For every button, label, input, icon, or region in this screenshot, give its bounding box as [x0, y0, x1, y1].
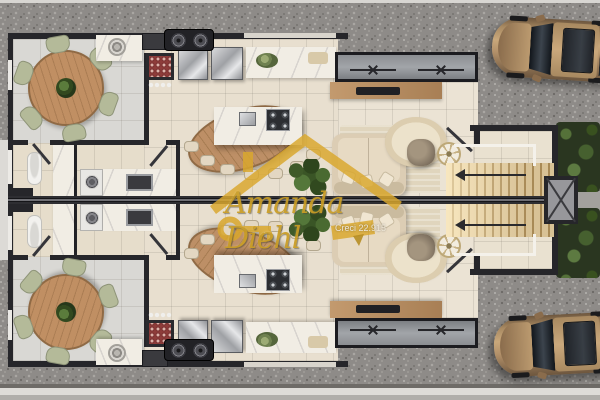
stair-railing [454, 144, 536, 147]
bar-stool [268, 168, 283, 179]
sidewalk-top [0, 0, 600, 3]
bar-stool [268, 221, 283, 232]
toilet [27, 152, 42, 185]
car-sunroof [561, 28, 596, 74]
interior-wall [176, 204, 180, 255]
car-sunroof [563, 321, 597, 367]
potted-plant [286, 159, 332, 195]
armchair [407, 139, 435, 166]
bar-stool [306, 240, 321, 251]
bottles [148, 312, 172, 318]
armchair [407, 234, 435, 261]
ac-fan [193, 343, 208, 358]
bar-stool [220, 164, 235, 175]
interior-wall [176, 145, 180, 196]
sidewalk-bottom [0, 388, 600, 395]
shaft-x-marking [544, 176, 578, 224]
laundry-sink [126, 209, 153, 226]
vanity-sink [57, 223, 69, 243]
table-centerpiece-plant [56, 302, 76, 322]
stair-direction-line [460, 224, 526, 226]
window [8, 310, 12, 340]
bar-stool [244, 220, 259, 231]
washer-door [85, 175, 99, 189]
ac-fan [193, 33, 208, 48]
washer-door [85, 211, 99, 225]
wall-stub [13, 204, 33, 212]
glazed-facade-panel [335, 52, 478, 82]
ac-fan [171, 343, 186, 358]
parked-car-upper [490, 15, 600, 84]
refrigerator [211, 320, 243, 353]
laundry-sink [126, 174, 153, 191]
stair-direction-arrow [449, 219, 465, 231]
toilet [27, 215, 42, 248]
left-window-sill [0, 140, 8, 260]
stair-direction-arrow [449, 169, 465, 181]
fan-symbol [418, 63, 464, 77]
decor-bowl [256, 332, 278, 347]
glazed-facade-panel [335, 318, 478, 348]
window [8, 216, 12, 250]
car-windshield [531, 319, 556, 372]
car-windshield [528, 22, 553, 75]
interior-wall [166, 255, 180, 260]
island-sink [239, 274, 256, 288]
decor-bowl [256, 53, 278, 68]
bar-stool [184, 248, 199, 259]
kitchen-window [244, 33, 336, 38]
porch-wall [470, 125, 558, 131]
bar-stool [220, 225, 235, 236]
fan-symbol [418, 323, 464, 337]
floor-plan-render: Amanda Diehl Creci 22.915 [0, 0, 600, 400]
tv [356, 87, 400, 95]
ac-condenser-pad [164, 29, 214, 51]
island-sink [239, 112, 256, 126]
wall-stub [13, 188, 33, 196]
bar-stool [200, 155, 215, 166]
refrigerator [178, 49, 208, 80]
cooktop [266, 109, 290, 131]
road-strip [0, 395, 600, 400]
porch-wall [470, 269, 558, 275]
refrigerator [211, 47, 243, 80]
unit-lower [8, 204, 560, 367]
kitchen-window [244, 362, 336, 367]
vanity-sink [57, 157, 69, 177]
interior-wall [8, 255, 28, 260]
stair-direction-line [460, 174, 526, 176]
interior-wall [8, 140, 28, 145]
potted-plant [286, 205, 332, 241]
bar-stool [244, 169, 259, 180]
window [8, 60, 12, 90]
cooktop [266, 269, 290, 291]
unit-upper [8, 33, 560, 196]
round-basin [108, 344, 126, 362]
parked-car-lower [493, 310, 600, 378]
window [8, 150, 12, 184]
decor-tray [308, 336, 328, 348]
fan-symbol [350, 323, 396, 337]
living-wall [474, 253, 480, 275]
round-basin [108, 38, 126, 56]
ac-fan [171, 33, 186, 48]
wine-rack [146, 53, 174, 80]
stair-railing [533, 144, 536, 166]
bar-stool [200, 234, 215, 245]
stair-railing [533, 234, 536, 256]
bar-stool [184, 141, 199, 152]
tv [356, 305, 400, 313]
decor-tray [308, 52, 328, 64]
party-wall [8, 196, 560, 204]
stair-railing [454, 253, 536, 256]
table-centerpiece-plant [56, 78, 76, 98]
bottles [148, 82, 172, 88]
ac-condenser-pad [164, 339, 214, 361]
fan-symbol [350, 63, 396, 77]
